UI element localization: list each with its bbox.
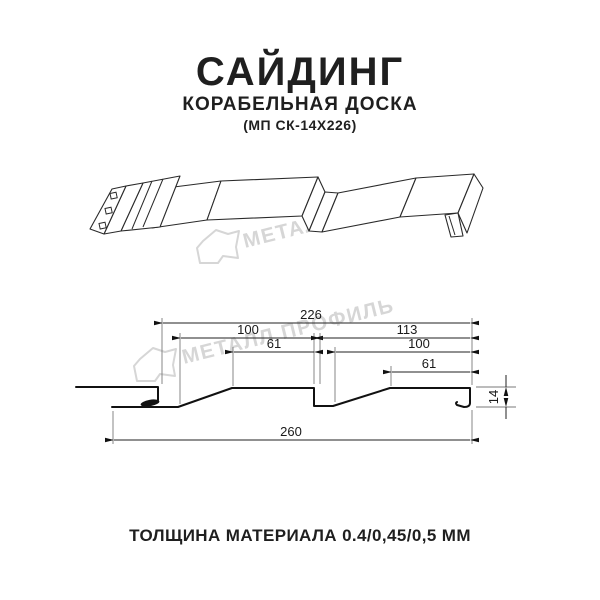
material-thickness-note: ТОЛЩИНА МАТЕРИАЛА 0.4/0,45/0,5 ММ — [0, 526, 600, 546]
plateau1-face — [207, 177, 318, 220]
dim-label-61-left: 61 — [267, 336, 281, 351]
extension-lines — [113, 318, 516, 444]
dim-label-260: 260 — [280, 424, 302, 439]
dim-label-226: 226 — [300, 307, 322, 322]
section-tail-line — [76, 387, 158, 400]
dim-label-113: 113 — [397, 322, 418, 337]
section-outline — [112, 388, 470, 407]
technical-drawing-canvas: МЕТАЛЛ ПРОФИЛЬ МЕТАЛЛ ПРОФИЛЬ — [0, 0, 600, 600]
brand-watermark-bottom: МЕТАЛЛ ПРОФИЛЬ — [134, 294, 397, 381]
dim-label-14: 14 — [486, 390, 501, 404]
brand-logo-icon — [197, 230, 239, 263]
dim-label-100-left: 100 — [237, 322, 259, 337]
brand-watermark-text: МЕТАЛЛ ПРОФИЛЬ — [180, 294, 397, 369]
dimension-lines — [114, 323, 506, 440]
slope2-face — [322, 178, 416, 232]
catalog-page: { "header": { "title": "САЙДИНГ", "subti… — [0, 0, 600, 600]
dim-label-100-right: 100 — [408, 336, 430, 351]
dim-label-61-right: 61 — [422, 356, 436, 371]
